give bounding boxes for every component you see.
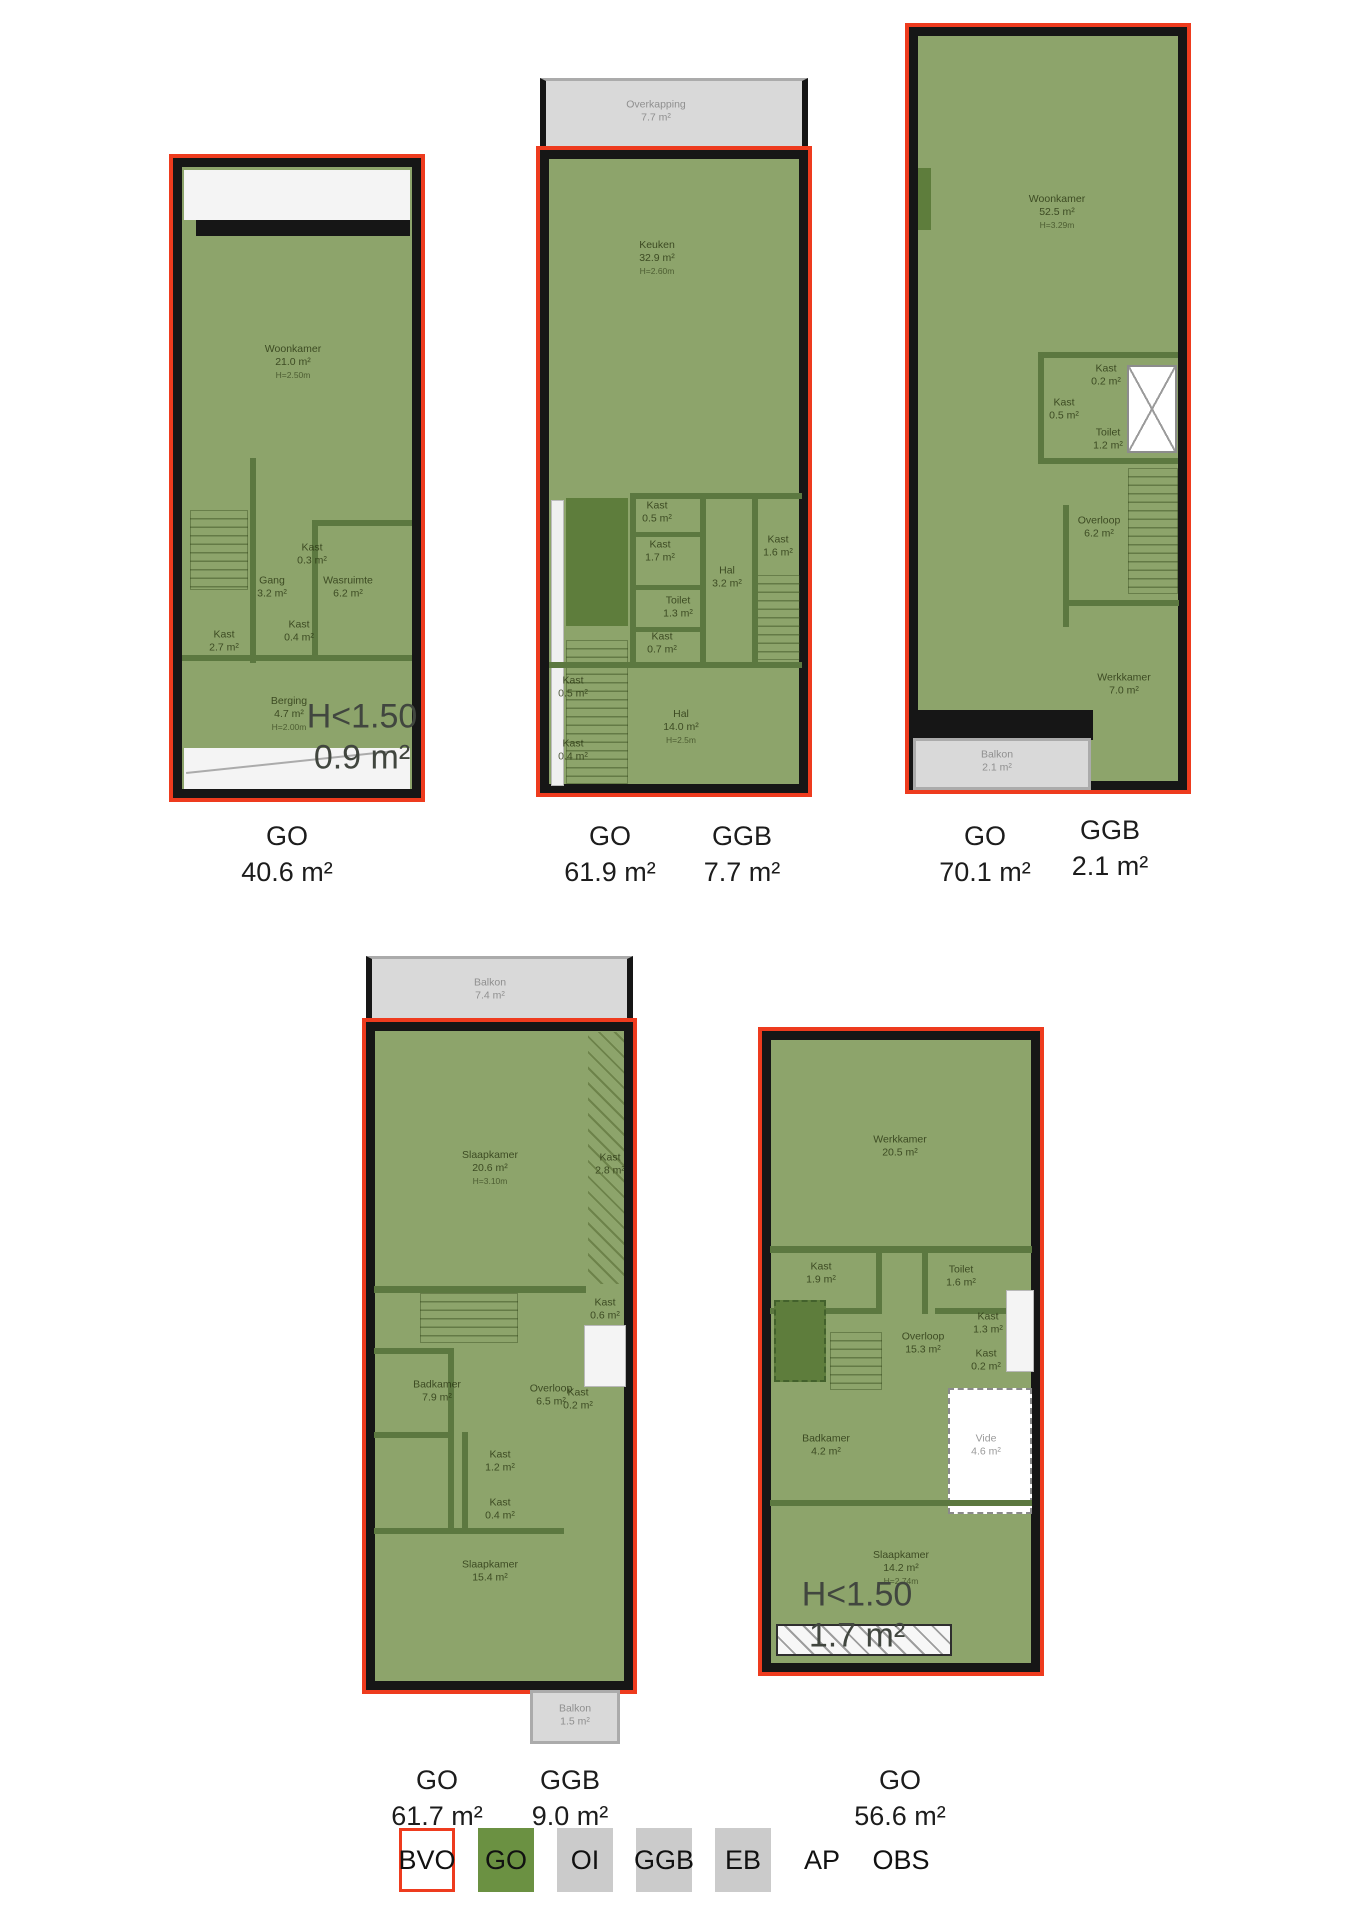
room-label: Woonkamer21.0 m²H=2.50m: [265, 343, 321, 381]
room-label: Slaapkamer20.6 m²H=3.10m: [462, 1149, 518, 1187]
under-stairs-storage: [566, 498, 628, 626]
interior-wall: [1038, 352, 1044, 464]
metric-go: GO40.6 m²: [241, 818, 333, 891]
room-label: Kast1.3 m²: [973, 1311, 1003, 1338]
annex-label: Balkon2.1 m²: [981, 749, 1013, 776]
room-label: Hal3.2 m²: [712, 565, 742, 592]
interior-wall: [700, 493, 706, 665]
room-label: Kast0.5 m²: [1049, 397, 1079, 424]
room-label: Kast0.5 m²: [642, 500, 672, 527]
room-label: Wasruimte6.2 m²: [323, 575, 373, 602]
interior-wall: [876, 1246, 882, 1314]
room-label: Kast0.4 m²: [558, 738, 588, 765]
room-label: Overloop15.3 m²: [902, 1331, 945, 1358]
legend-item-go: GO: [478, 1828, 534, 1892]
room-label: Vide4.6 m²: [971, 1433, 1001, 1460]
shaft: [1006, 1290, 1034, 1372]
stairs: [830, 1332, 882, 1390]
room-label: Kast1.6 m²: [763, 534, 793, 561]
exterior-wall: [909, 710, 1093, 740]
room-label: Kast1.9 m²: [806, 1261, 836, 1288]
room-label: Kast0.4 m²: [485, 1497, 515, 1524]
room-label: Kast0.2 m²: [1091, 363, 1121, 390]
shaft: [584, 1325, 626, 1387]
interior-wall: [462, 1432, 468, 1528]
floorplan-sheet: Woonkamer21.0 m²H=2.50m Kast0.3 m² Gang3…: [0, 0, 1358, 1920]
low-height-label: H<1.500.9 m²: [307, 697, 418, 780]
room-label: Badkamer7.9 m²: [413, 1379, 461, 1406]
room-label: Kast0.5 m²: [558, 675, 588, 702]
interior-wall: [374, 1348, 448, 1354]
interior-wall: [770, 1500, 1032, 1506]
room-label: Toilet1.3 m²: [663, 595, 693, 622]
room-label: Overloop6.5 m²: [530, 1383, 573, 1410]
stairs: [190, 510, 248, 590]
interior-wall: [374, 1286, 586, 1293]
interior-wall: [1063, 505, 1069, 627]
room-label: Gang3.2 m²: [257, 575, 287, 602]
entry-recess: [184, 170, 410, 220]
legend-item-eb: EB: [715, 1828, 771, 1892]
metric-go: GO61.9 m²: [564, 818, 656, 891]
stairs: [420, 1293, 518, 1343]
shaft: [1127, 365, 1177, 453]
metric-go: GO56.6 m²: [854, 1762, 946, 1835]
room-label: Kast1.2 m²: [485, 1449, 515, 1476]
room-label: Toilet1.6 m²: [946, 1264, 976, 1291]
legend: BVO GO OI GGB EB AP OBS: [399, 1828, 929, 1892]
room-label: Woonkamer52.5 m²H=3.29m: [1029, 193, 1085, 231]
legend-item-oi: OI: [557, 1828, 613, 1892]
room-label: Werkkamer7.0 m²: [1097, 672, 1150, 699]
room-label: Hal14.0 m²H=2.5m: [663, 708, 699, 746]
interior-wall: [250, 458, 256, 663]
interior-wall: [770, 1246, 1032, 1253]
interior-wall: [630, 532, 706, 537]
room-label: Kast2.7 m²: [209, 629, 239, 656]
interior-wall: [549, 662, 802, 668]
metric-go: GO61.7 m²: [391, 1762, 483, 1835]
interior-wall: [182, 655, 412, 661]
interior-wall: [752, 493, 758, 665]
interior-wall: [374, 1432, 450, 1438]
annex-label: Balkon7.4 m²: [474, 977, 506, 1004]
legend-item-obs: OBS: [873, 1828, 929, 1892]
room-label: Toilet1.2 m²: [1093, 427, 1123, 454]
metric-ggb: GGB7.7 m²: [704, 818, 781, 891]
wall-recess: [918, 168, 931, 230]
room-label: Kast0.2 m²: [971, 1348, 1001, 1375]
interior-wall: [922, 1246, 928, 1314]
annex-label: Balkon1.5 m²: [559, 1703, 591, 1730]
room-label: Slaapkamer15.4 m²: [462, 1559, 518, 1586]
room-label: Kast0.7 m²: [647, 631, 677, 658]
room-label: Kast0.3 m²: [297, 542, 327, 569]
interior-wall: [312, 520, 412, 526]
metric-go: GO70.1 m²: [939, 818, 1031, 891]
room-label: Kast0.4 m²: [284, 619, 314, 646]
interior-wall: [448, 1348, 454, 1528]
interior-wall: [630, 585, 706, 590]
low-height-label: H<1.501.7 m²: [802, 1575, 913, 1658]
room-label: Werkkamer20.5 m²: [873, 1134, 926, 1161]
room-label: Berging4.7 m²H=2.00m: [271, 695, 307, 733]
room-label: Kast2.8 m²: [595, 1152, 625, 1179]
interior-wall: [1038, 458, 1178, 464]
legend-item-ap: AP: [794, 1828, 850, 1892]
interior-wall: [1063, 600, 1179, 606]
room-label: Kast0.6 m²: [590, 1297, 620, 1324]
room-label: Badkamer4.2 m²: [802, 1433, 850, 1460]
interior-wall: [630, 493, 802, 499]
legend-item-ggb: GGB: [636, 1828, 692, 1892]
metric-ggb: GGB2.1 m²: [1072, 812, 1149, 885]
interior-wall: [1038, 352, 1178, 358]
interior-wall: [196, 220, 410, 236]
room-label: Keuken32.9 m²H=2.60m: [639, 239, 675, 277]
annex-label: Overkapping7.7 m²: [626, 99, 686, 126]
legend-item-bvo: BVO: [399, 1828, 455, 1892]
room-label: Overloop6.2 m²: [1078, 515, 1121, 542]
metric-ggb: GGB9.0 m²: [532, 1762, 609, 1835]
room-label: Kast1.7 m²: [645, 539, 675, 566]
interior-wall: [374, 1528, 564, 1534]
interior-wall: [630, 493, 636, 665]
stairs: [756, 575, 800, 660]
stairs: [1128, 468, 1178, 594]
closet-block: [774, 1300, 826, 1382]
